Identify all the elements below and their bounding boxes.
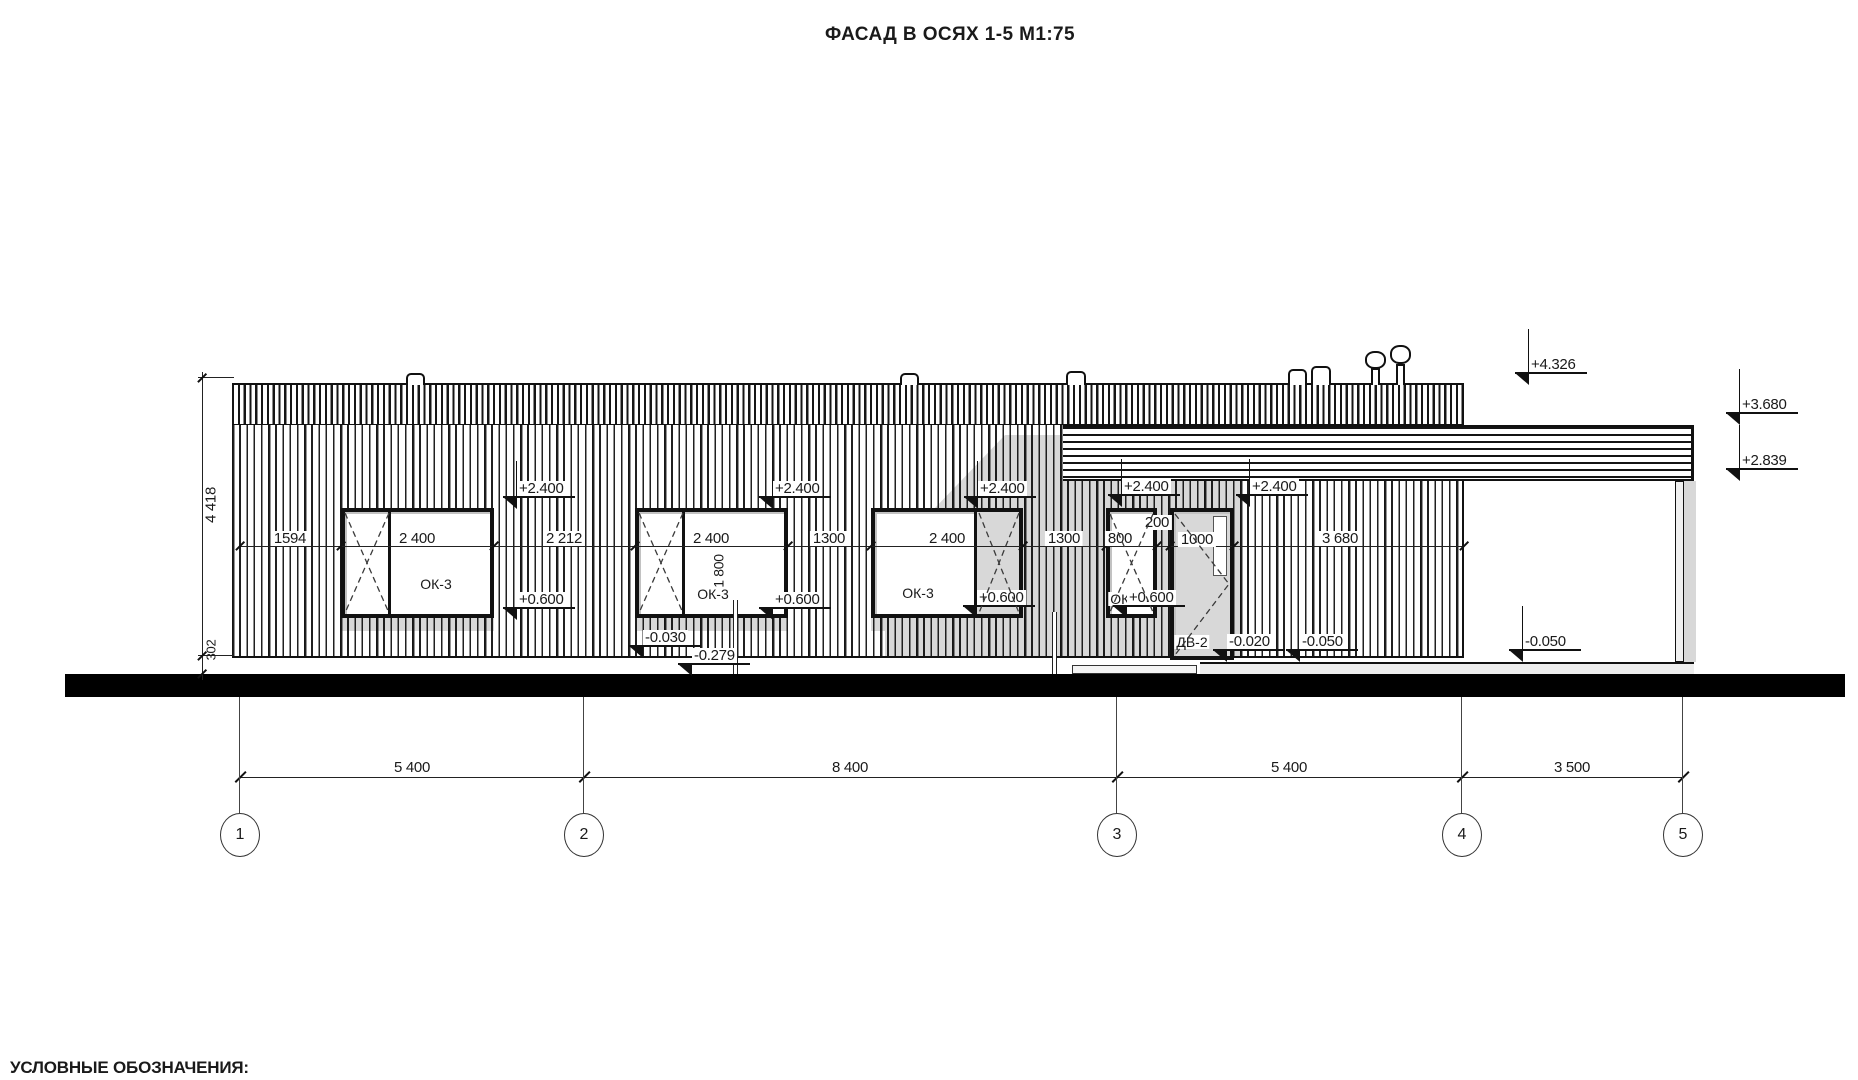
axis-dim-label: 3 500 xyxy=(1554,760,1590,775)
downpipe xyxy=(1052,612,1057,674)
canopy-slat-band xyxy=(1063,425,1694,481)
roof-parapet-band xyxy=(232,383,1464,425)
dim-label-vertical: 4 418 xyxy=(204,487,219,523)
ground-line xyxy=(65,674,1845,697)
dim-label: 1300 xyxy=(810,531,848,546)
dim-label: 2 212 xyxy=(543,531,585,546)
axis-line-4 xyxy=(1461,697,1462,813)
axis-dim-label: 5 400 xyxy=(1271,760,1307,775)
opening-label: ДВ-2 xyxy=(1174,635,1209,649)
opening-label: ОК-3 xyxy=(695,587,731,601)
entrance-step xyxy=(1072,665,1197,674)
vent-pipe xyxy=(1396,364,1405,385)
window-mullion xyxy=(682,512,685,614)
dim-label: 1300 xyxy=(1045,531,1083,546)
axis-bubble-1: 1 xyxy=(220,813,260,857)
opening-label: ОК-3 xyxy=(900,586,936,600)
dim-label-vertical: 302 xyxy=(204,640,219,661)
axis-dim-label: 8 400 xyxy=(832,760,868,775)
roof-vent xyxy=(406,373,425,385)
dim-label-window-height: 1 800 xyxy=(712,554,727,588)
roof-vent xyxy=(1311,366,1331,385)
dim-label: 200 xyxy=(1142,515,1172,530)
vent-cap xyxy=(1390,345,1411,364)
dim-label: 800 xyxy=(1105,531,1135,546)
vent-pipe xyxy=(1371,368,1380,385)
carport-post xyxy=(1675,481,1684,662)
dim-line-height xyxy=(202,372,203,680)
roof-vent xyxy=(1288,369,1307,385)
roof-vent xyxy=(900,373,919,385)
dim-label: 2 400 xyxy=(926,531,968,546)
axis-bubble-5: 5 xyxy=(1663,813,1703,857)
dim-label: 1000 xyxy=(1178,532,1216,547)
terrace-slab xyxy=(1200,662,1694,674)
facade-drawing-sheet: ФАСАД В ОСЯХ 1-5 М1:75 xyxy=(0,0,1858,1080)
drawing-title: ФАСАД В ОСЯХ 1-5 М1:75 xyxy=(825,24,1075,46)
axis-line-3 xyxy=(1116,697,1117,813)
legend-heading: УСЛОВНЫЕ ОБОЗНАЧЕНИЯ: xyxy=(10,1058,249,1078)
axis-bubble-3: 3 xyxy=(1097,813,1137,857)
axis-bubble-4: 4 xyxy=(1442,813,1482,857)
dim-label: 2 400 xyxy=(690,531,732,546)
dim-label: 1594 xyxy=(271,531,309,546)
axis-line-2 xyxy=(583,697,584,813)
axis-line-1 xyxy=(239,697,240,813)
axis-line-5 xyxy=(1682,697,1683,813)
dim-label: 3 680 xyxy=(1319,531,1361,546)
opening-label: ОК-3 xyxy=(418,577,454,591)
vent-cap xyxy=(1365,351,1386,369)
post-shadow xyxy=(1684,481,1696,662)
window-mullion xyxy=(388,512,391,614)
dim-line-axes xyxy=(240,777,1683,778)
dim-label: 2 400 xyxy=(396,531,438,546)
roof-vent xyxy=(1066,371,1086,385)
axis-dim-label: 5 400 xyxy=(394,760,430,775)
axis-bubble-2: 2 xyxy=(564,813,604,857)
window-ok3-1 xyxy=(341,508,494,618)
